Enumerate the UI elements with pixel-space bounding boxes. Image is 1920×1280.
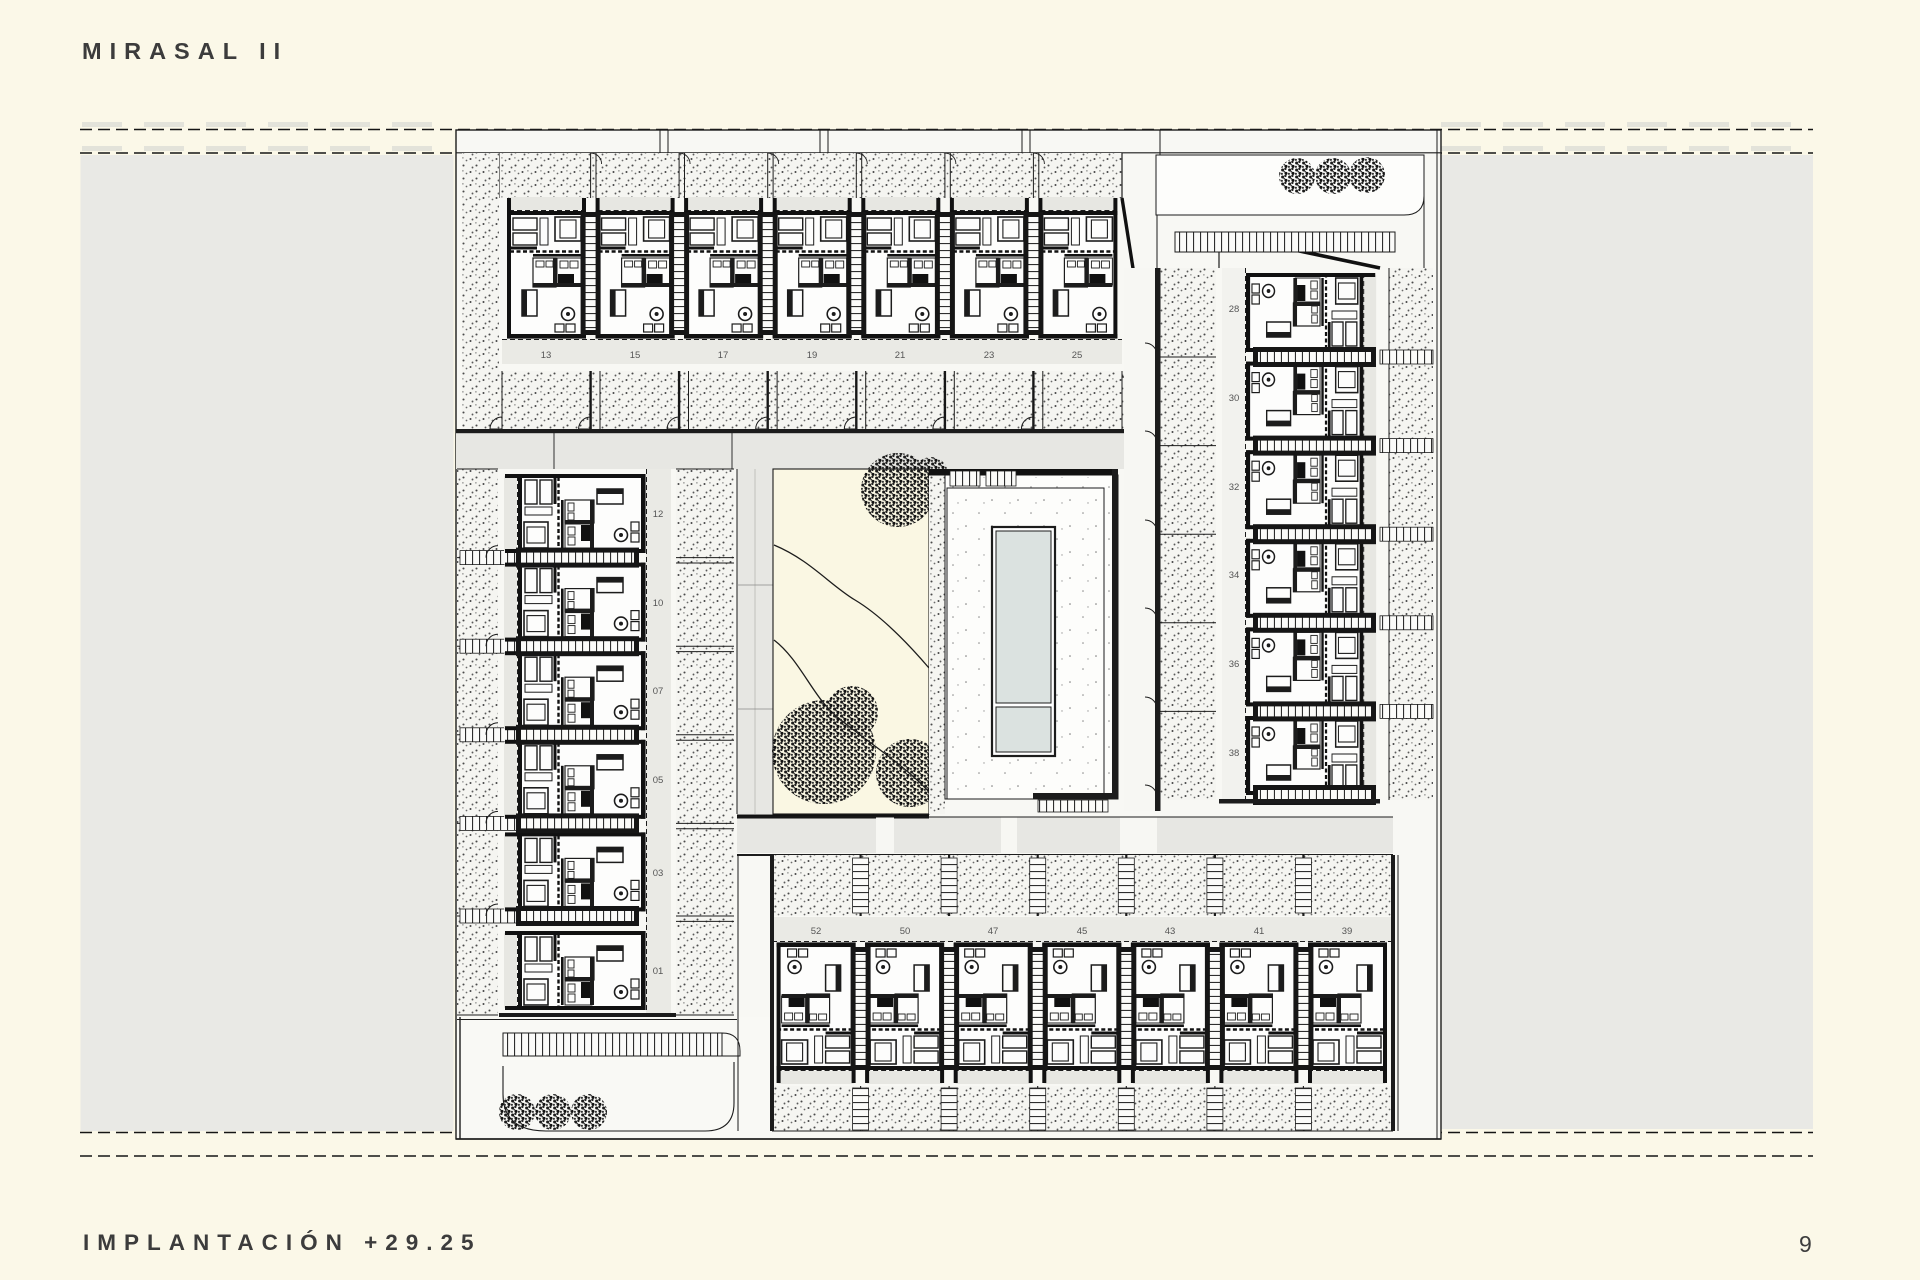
svg-text:9: 9 (1799, 1231, 1812, 1257)
svg-text:19: 19 (807, 350, 818, 361)
svg-text:07: 07 (653, 686, 664, 697)
svg-text:23: 23 (984, 350, 995, 361)
svg-text:10: 10 (653, 598, 664, 609)
svg-text:43: 43 (1165, 926, 1176, 937)
svg-text:17: 17 (718, 350, 729, 361)
svg-text:01: 01 (653, 966, 664, 977)
svg-text:21: 21 (895, 350, 906, 361)
svg-text:34: 34 (1229, 570, 1240, 581)
svg-text:28: 28 (1229, 304, 1240, 315)
svg-text:52: 52 (811, 926, 822, 937)
svg-text:45: 45 (1077, 926, 1088, 937)
svg-text:47: 47 (988, 926, 999, 937)
svg-text:39: 39 (1342, 926, 1353, 937)
svg-text:25: 25 (1072, 350, 1083, 361)
svg-text:32: 32 (1229, 482, 1240, 493)
svg-text:41: 41 (1254, 926, 1265, 937)
svg-text:03: 03 (653, 868, 664, 879)
svg-text:38: 38 (1229, 748, 1240, 759)
svg-text:36: 36 (1229, 659, 1240, 670)
svg-text:12: 12 (653, 509, 664, 520)
svg-text:IMPLANTACIÓN +29.25: IMPLANTACIÓN +29.25 (83, 1230, 482, 1255)
svg-text:13: 13 (541, 350, 552, 361)
svg-text:50: 50 (900, 926, 911, 937)
svg-text:05: 05 (653, 775, 664, 786)
svg-text:30: 30 (1229, 393, 1240, 404)
svg-text:MIRASAL II: MIRASAL II (82, 38, 288, 64)
svg-text:15: 15 (630, 350, 641, 361)
